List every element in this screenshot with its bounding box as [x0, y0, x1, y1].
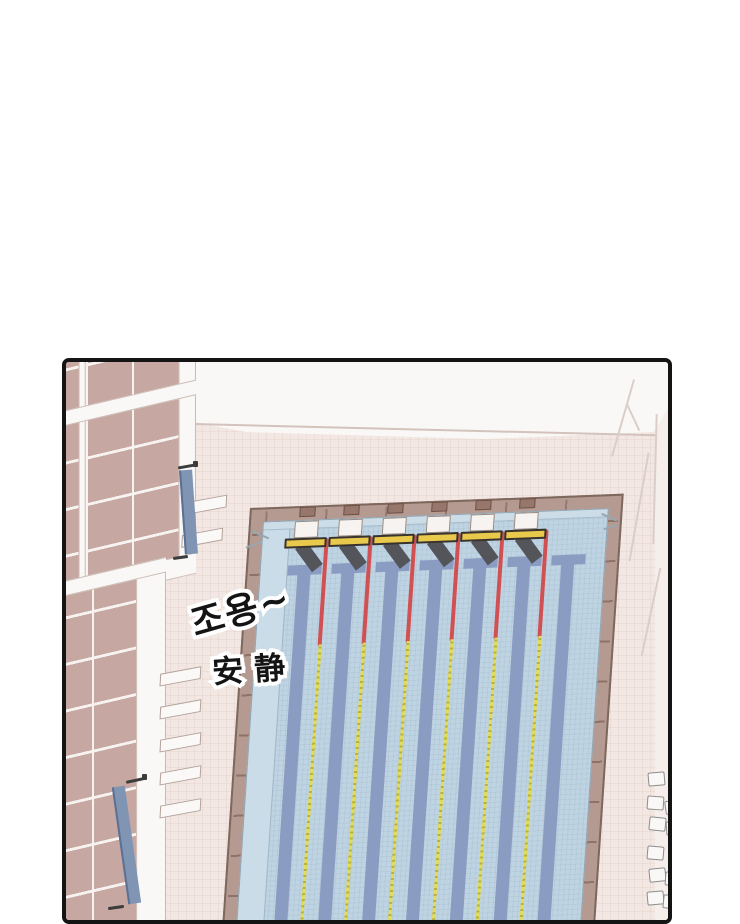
starting-block [460, 530, 503, 542]
deck-stool [662, 894, 668, 910]
deck-stool [647, 771, 665, 786]
window-mullion [79, 362, 86, 601]
starting-block-post [299, 506, 316, 517]
lane-rope-red [449, 533, 460, 642]
starting-block [416, 532, 459, 544]
deck-stool [647, 795, 665, 810]
right-wall [655, 408, 668, 920]
lane-rope-red [318, 538, 329, 647]
starting-block-post [519, 498, 536, 509]
starting-block-post [387, 503, 404, 514]
starting-block-post [431, 501, 448, 512]
starting-block [284, 537, 327, 549]
starting-block [504, 529, 547, 541]
starting-block-base [470, 514, 495, 532]
lane-rope-red [493, 531, 504, 640]
lane-rope-red [537, 530, 548, 639]
panel-artwork: 조용~ 安静 [66, 362, 668, 920]
deck-stool [646, 845, 664, 860]
starting-block-post [475, 500, 492, 511]
lane-rope-red [362, 536, 373, 645]
starting-block-base [426, 515, 451, 533]
sfx-quiet-chinese: 安静 [211, 641, 298, 692]
starting-block-base [338, 519, 363, 537]
starting-block-base [294, 520, 319, 538]
lane-rope-red [405, 535, 416, 644]
starting-block-base [382, 517, 407, 535]
starting-block [372, 534, 415, 546]
window-bank-lower [66, 557, 166, 920]
starting-block [328, 535, 371, 547]
flag-pole-knob [142, 774, 147, 780]
flag-pole-knob [193, 461, 198, 467]
deck-stool [665, 871, 668, 886]
comic-panel: 조용~ 安静 [62, 358, 672, 924]
starting-block-post [343, 505, 360, 516]
pool-water [235, 508, 608, 920]
deck-stool [666, 820, 668, 835]
starting-block-base [514, 512, 539, 530]
swimming-pool [221, 494, 623, 920]
deck-stool [648, 816, 666, 832]
